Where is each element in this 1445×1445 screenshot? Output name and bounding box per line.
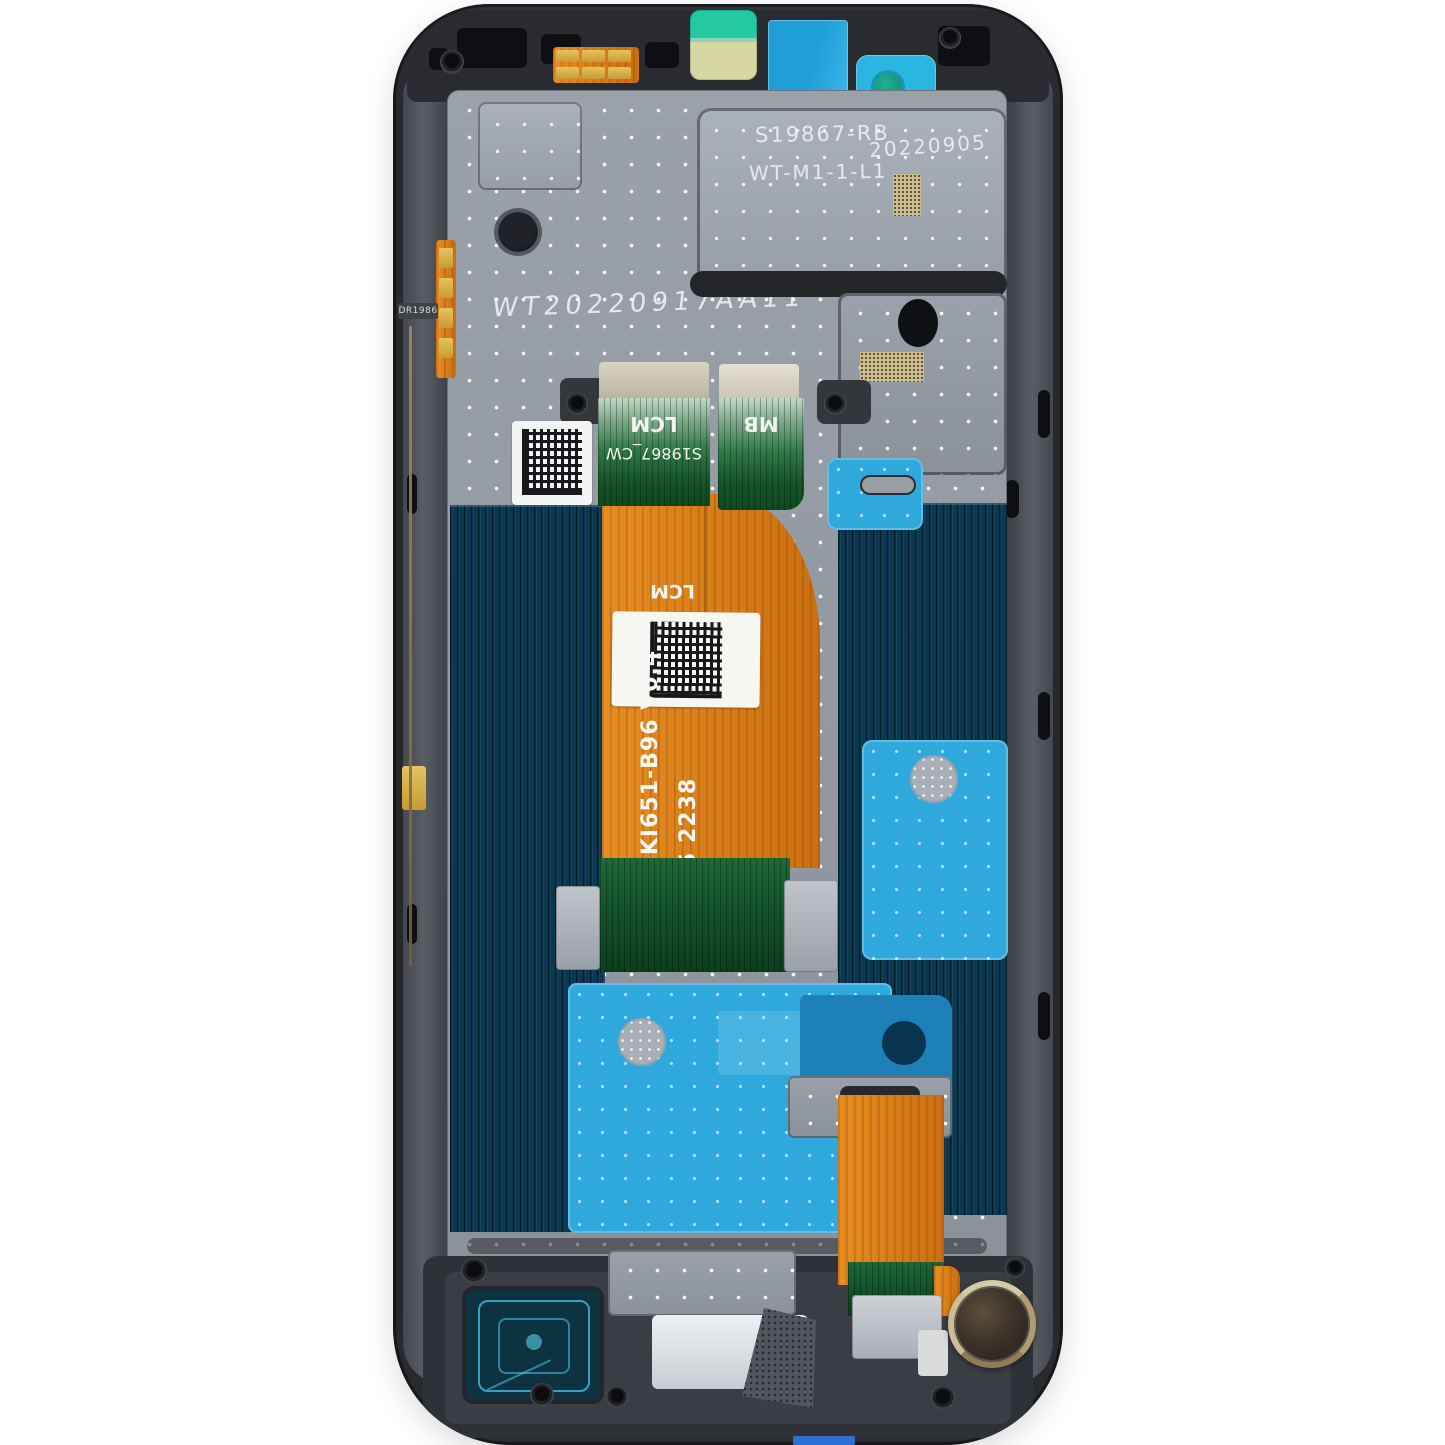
side-button-pad bbox=[439, 338, 453, 358]
screw-hole bbox=[931, 1386, 955, 1410]
adhesive-tab-top-right bbox=[827, 458, 923, 530]
earpiece-mint-sticker bbox=[690, 10, 757, 80]
camera-blue-film bbox=[768, 20, 848, 98]
side-button-flex bbox=[436, 240, 456, 378]
adhesive-pad-circle bbox=[618, 1018, 666, 1066]
phone-frame: S19867-RB WT-M1-1-L1 20220905 WT20220917… bbox=[393, 4, 1063, 1445]
datamatrix-code bbox=[522, 429, 582, 495]
lcm-connector-label: LCM bbox=[598, 412, 710, 436]
flex-stiffener-left bbox=[556, 886, 600, 970]
antenna-contact-pad bbox=[582, 50, 605, 62]
sub-flex-cable bbox=[838, 1095, 944, 1285]
side-button-pad bbox=[439, 308, 453, 328]
antenna-contact-pad bbox=[608, 67, 631, 79]
shield-code-text: WT-M1-1-L1 bbox=[749, 159, 888, 185]
antenna-gold-contact bbox=[402, 766, 426, 810]
screw-hole bbox=[939, 27, 961, 49]
frame-cutout bbox=[645, 42, 679, 68]
adhesive-pad-circle bbox=[910, 755, 958, 803]
side-flex-id-text: DR1986 bbox=[398, 306, 437, 316]
speaker-center-dot bbox=[526, 1334, 542, 1350]
usb-connector-peek bbox=[793, 1436, 855, 1445]
flex-green-band bbox=[600, 858, 790, 972]
antenna-wire bbox=[409, 326, 412, 966]
side-button-pad bbox=[439, 248, 453, 268]
adhesive-tab-slot bbox=[860, 475, 916, 495]
flex-barcode-label bbox=[612, 611, 761, 708]
adhesive-pad-right bbox=[862, 740, 1008, 960]
flex-lcm-label: LCM bbox=[651, 580, 695, 602]
antenna-contact-pad bbox=[608, 50, 631, 62]
screw-hole bbox=[440, 50, 464, 74]
screw-post bbox=[824, 393, 846, 415]
screw-post bbox=[566, 393, 588, 415]
sim-port-slot bbox=[1005, 480, 1019, 518]
flex-batch-text: 5 2238 bbox=[676, 778, 701, 868]
flex-stiffener-right bbox=[784, 880, 838, 972]
antenna-contact-pad bbox=[582, 67, 605, 79]
side-button-pad bbox=[439, 278, 453, 298]
white-pad bbox=[918, 1330, 948, 1376]
vibration-motor bbox=[948, 1280, 1036, 1368]
rail-slot bbox=[1038, 692, 1050, 740]
product-photo: S19867-RB WT-M1-1-L1 20220905 WT20220917… bbox=[0, 0, 1445, 1445]
lcm-connector-cap bbox=[599, 362, 709, 403]
barcode-label bbox=[512, 421, 592, 505]
camera-oval-hole bbox=[898, 299, 938, 347]
screw-hole bbox=[606, 1386, 628, 1408]
mb-connector-label: MB bbox=[718, 412, 804, 436]
lcm-flex-connector: LCM S19867_CW bbox=[598, 398, 710, 506]
small-shield-plate bbox=[478, 102, 582, 190]
adhesive-dark-hole bbox=[882, 1021, 926, 1065]
rail-slot bbox=[1038, 390, 1050, 438]
antenna-contact-pad bbox=[556, 67, 579, 79]
gold-code-sticker bbox=[860, 352, 924, 382]
frame-cutout bbox=[457, 28, 527, 68]
screw-hole bbox=[1005, 1258, 1025, 1278]
gold-code-sticker bbox=[893, 174, 921, 216]
flex-model-text: SKI651-B96 V0.4 bbox=[638, 650, 663, 872]
side-flex-label: DR1986 bbox=[398, 303, 438, 319]
antenna-flex-top bbox=[553, 47, 639, 83]
rail-slot bbox=[1038, 992, 1050, 1040]
lcm-flex-id: S19867_CW bbox=[598, 444, 710, 463]
screw-hole bbox=[530, 1383, 554, 1407]
bottom-plate bbox=[608, 1250, 796, 1316]
mb-flex-connector: MB bbox=[718, 398, 804, 510]
microphone-hole bbox=[498, 212, 538, 252]
mainboard-shield-plate: S19867-RB WT-M1-1-L1 20220905 bbox=[697, 108, 1007, 295]
antenna-contact-pad bbox=[556, 50, 579, 62]
screw-hole bbox=[461, 1258, 487, 1284]
